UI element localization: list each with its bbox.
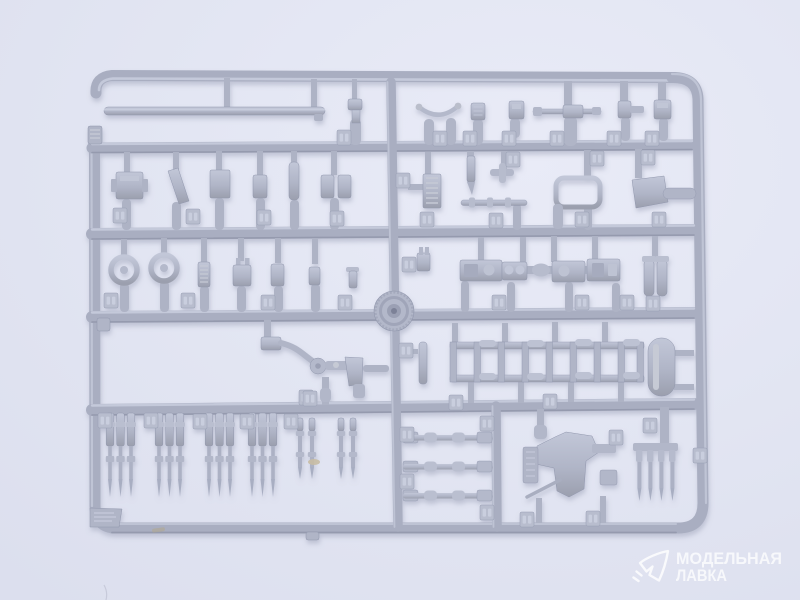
svg-text:ЛАВКА: ЛАВКА <box>676 566 727 585</box>
